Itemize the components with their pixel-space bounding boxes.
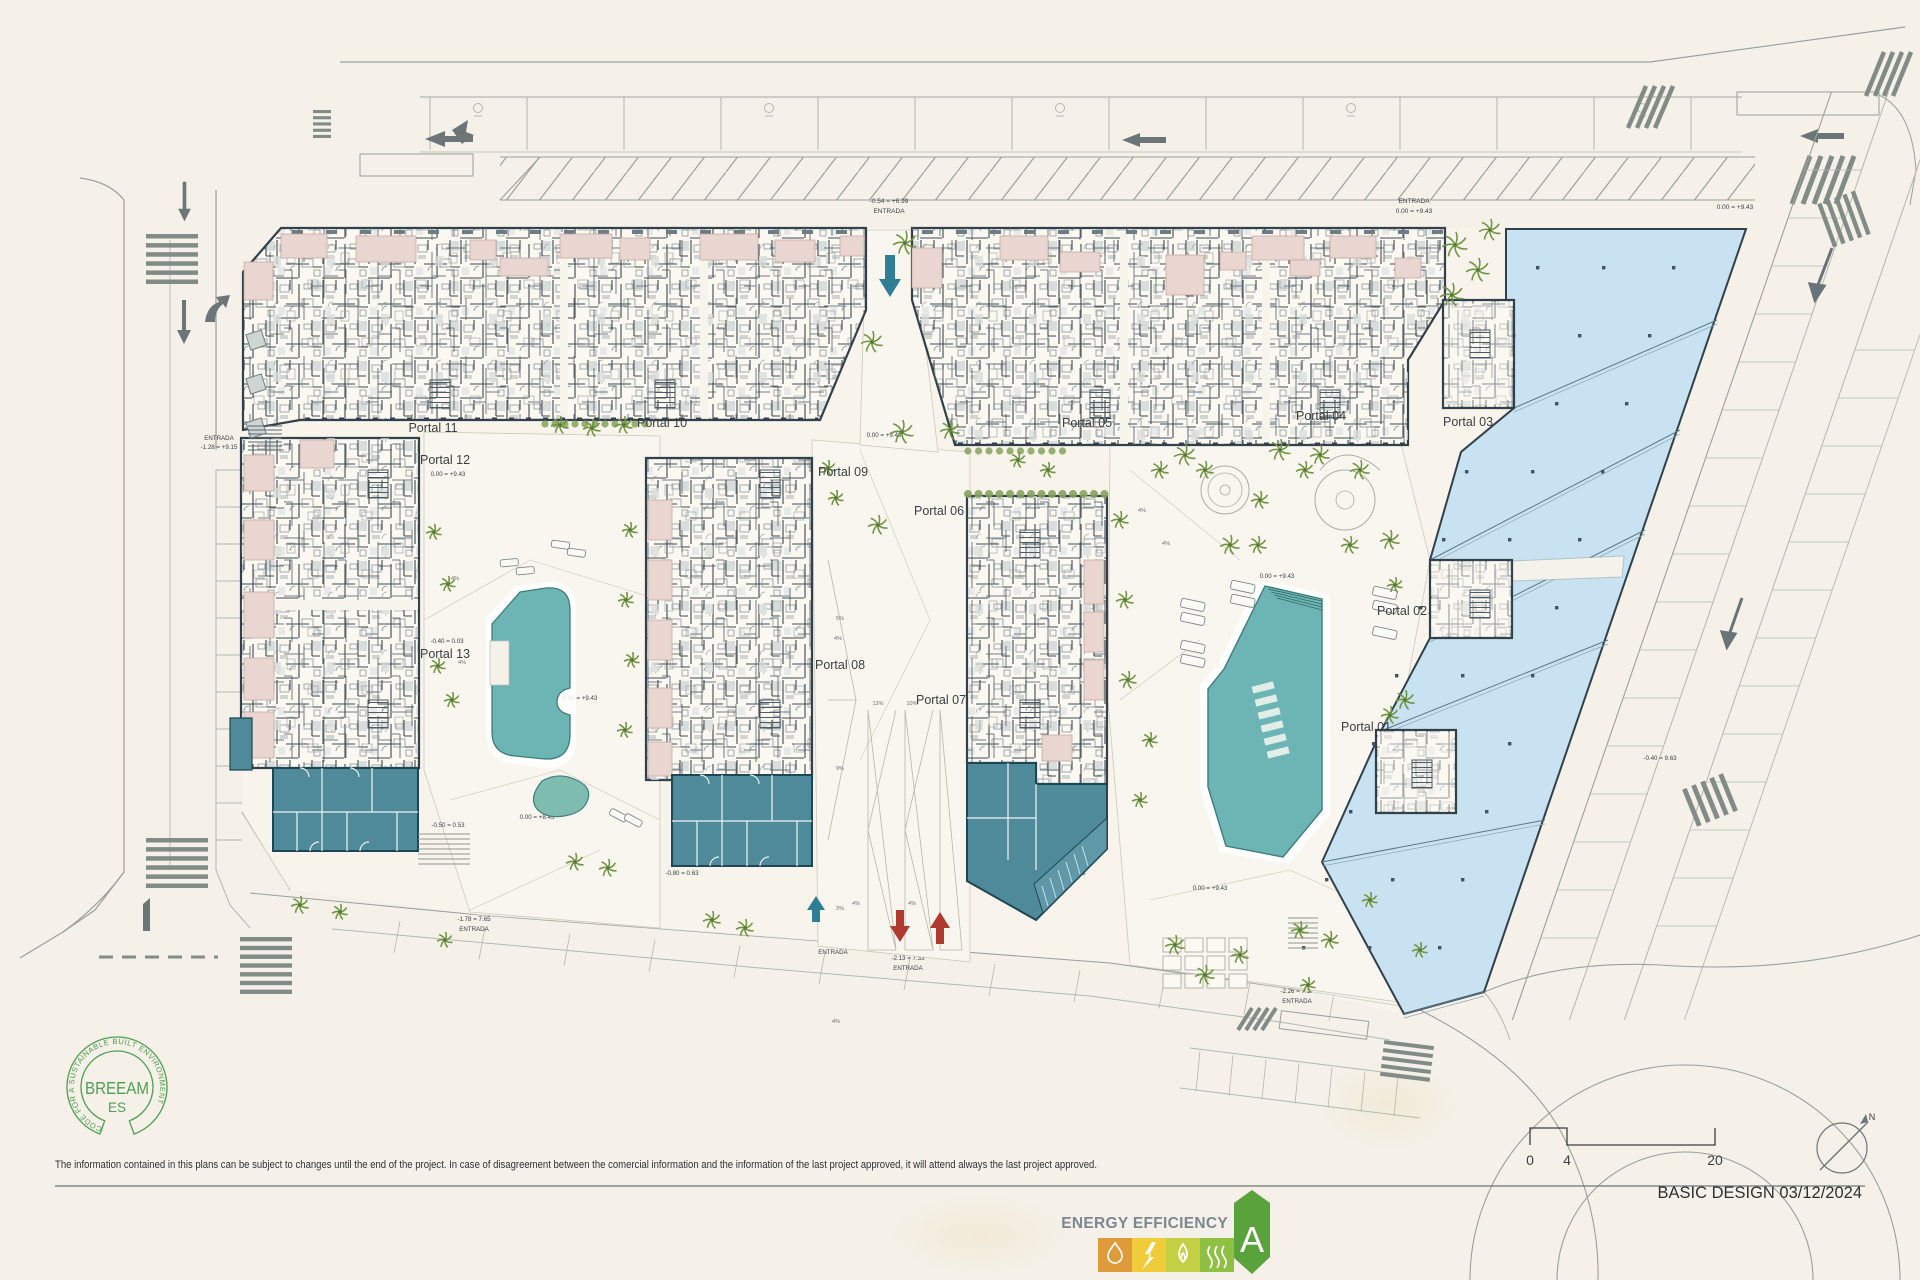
svg-text:4%: 4%: [834, 636, 842, 642]
svg-text:4%: 4%: [1138, 508, 1146, 514]
svg-text:0: 0: [1526, 1152, 1534, 1168]
svg-text:ENTRADA: ENTRADA: [1398, 198, 1430, 205]
svg-text:Portal 13: Portal 13: [420, 647, 470, 661]
svg-text:Portal 11: Portal 11: [408, 421, 457, 435]
svg-text:4%: 4%: [852, 901, 860, 907]
svg-text:9%: 9%: [836, 766, 844, 772]
svg-text:ENTRADA: ENTRADA: [1282, 998, 1312, 1005]
svg-text:Portal 09: Portal 09: [818, 465, 868, 479]
svg-text:Portal 04: Portal 04: [1296, 409, 1346, 423]
svg-text:ENTRADA: ENTRADA: [873, 208, 905, 215]
svg-text:Portal 08: Portal 08: [815, 658, 865, 672]
svg-text:-1.78 = 7.65: -1.78 = 7.65: [457, 916, 491, 923]
svg-text:Portal 02: Portal 02: [1377, 604, 1427, 618]
svg-text:BREEAM: BREEAM: [85, 1078, 149, 1098]
svg-text:-1.28 = +9.15: -1.28 = +9.15: [201, 444, 238, 451]
svg-text:N: N: [1869, 1112, 1876, 1122]
svg-text:4: 4: [1563, 1152, 1571, 1168]
svg-text:ENTRADA: ENTRADA: [204, 435, 234, 442]
svg-text:0.00 = +9.43: 0.00 = +9.43: [431, 471, 466, 478]
svg-text:-0.40 = 9.63: -0.40 = 9.63: [1643, 755, 1677, 762]
svg-text:Portal 07: Portal 07: [916, 693, 966, 707]
svg-text:The information contained in t: The information contained in this plans …: [55, 1159, 1097, 1171]
svg-text:ES: ES: [108, 1100, 126, 1115]
svg-text:ENTRADA: ENTRADA: [893, 965, 923, 972]
svg-text:0.00 = +9.43: 0.00 = +9.43: [1193, 885, 1228, 892]
svg-text:0.00 = +9.43: 0.00 = +9.43: [1717, 204, 1754, 211]
svg-text:0.00 = +9.43: 0.00 = +9.43: [1396, 208, 1433, 215]
svg-text:5%: 5%: [836, 616, 844, 622]
svg-text:3%: 3%: [836, 906, 844, 912]
svg-text:BASIC DESIGN 03/12/2024: BASIC DESIGN 03/12/2024: [1657, 1184, 1862, 1202]
svg-text:4%: 4%: [1162, 541, 1170, 547]
svg-text:-0.40 = 0.03: -0.40 = 0.03: [430, 638, 464, 645]
svg-text:-0.54 = +6.99: -0.54 = +6.99: [870, 198, 909, 205]
svg-text:-0.80 = 0.63: -0.80 = 0.63: [665, 870, 699, 877]
svg-text:4%: 4%: [832, 1019, 840, 1025]
svg-text:ENTRADA: ENTRADA: [818, 949, 848, 956]
svg-text:0.00 = +9.43: 0.00 = +9.43: [1260, 573, 1295, 580]
svg-text:Portal 10: Portal 10: [637, 416, 687, 430]
svg-text:4%: 4%: [451, 576, 459, 582]
svg-text:Portal 01: Portal 01: [1341, 720, 1391, 734]
svg-text:-0.50 = 0.53: -0.50 = 0.53: [431, 822, 465, 829]
svg-text:Portal 03: Portal 03: [1443, 415, 1493, 429]
svg-text:ENERGY EFFICIENCY: ENERGY EFFICIENCY: [1061, 1215, 1228, 1232]
svg-text:A: A: [1240, 1219, 1264, 1260]
svg-text:Portal 05: Portal 05: [1062, 416, 1112, 430]
svg-text:13%: 13%: [872, 701, 883, 707]
svg-text:Portal 06: Portal 06: [914, 504, 964, 518]
svg-text:ENTRADA: ENTRADA: [459, 926, 489, 933]
svg-text:4%: 4%: [908, 901, 916, 907]
svg-text:20: 20: [1707, 1152, 1723, 1168]
svg-text:Portal 12: Portal 12: [420, 453, 470, 467]
